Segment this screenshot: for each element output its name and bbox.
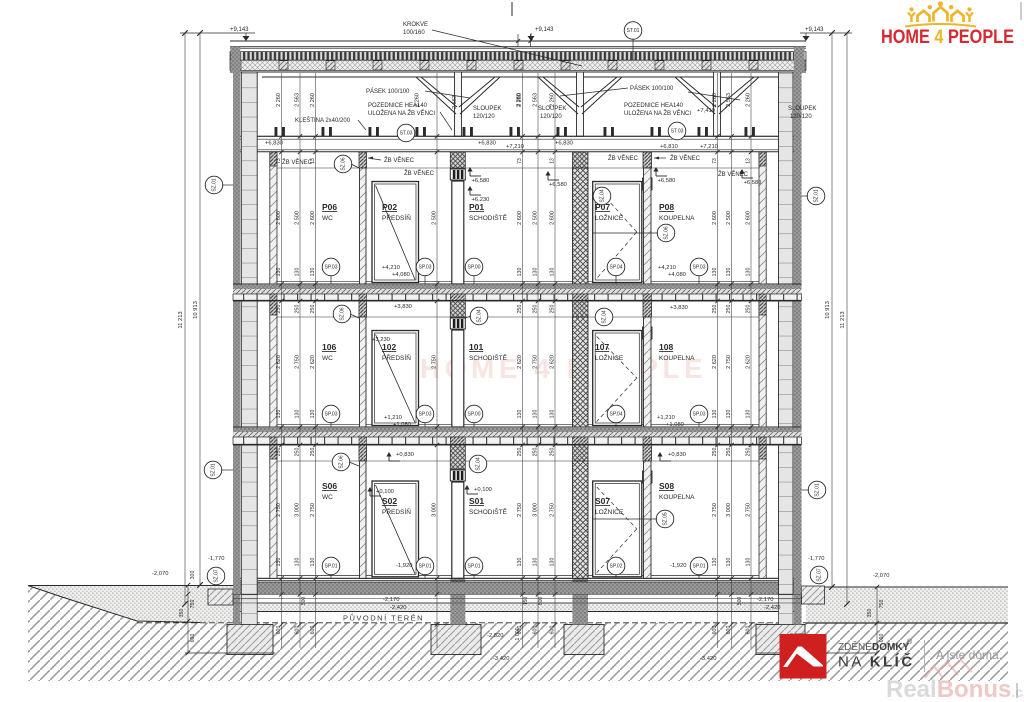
svg-text:10 913: 10 913: [825, 301, 831, 319]
svg-text:-3,420: -3,420: [493, 656, 509, 662]
svg-text:PŘEDSÍŇ: PŘEDSÍŇ: [382, 213, 411, 222]
svg-text:+0,830: +0,830: [396, 452, 414, 458]
svg-text:130: 130: [550, 410, 556, 419]
svg-text:ŽB VĚNEC: ŽB VĚNEC: [608, 154, 639, 162]
svg-text:ST.03: ST.03: [400, 131, 413, 137]
svg-text:POZEDNICE HEA140: POZEDNICE HEA140: [368, 103, 428, 109]
svg-text:250: 250: [295, 448, 301, 457]
svg-text:P06: P06: [322, 202, 337, 212]
svg-text:600: 600: [276, 626, 282, 635]
svg-text:PŮVODNÍ TERÉN: PŮVODNÍ TERÉN: [343, 614, 424, 623]
svg-text:250: 250: [550, 448, 556, 457]
svg-text:SZ.01: SZ.01: [815, 483, 821, 497]
svg-text:+0,100: +0,100: [376, 489, 394, 495]
svg-text:2 750: 2 750: [550, 503, 556, 517]
svg-text:2 260: 2 260: [746, 93, 752, 107]
svg-text:SZ.04: SZ.04: [477, 309, 483, 323]
svg-text:P08: P08: [659, 202, 674, 212]
svg-text:600: 600: [879, 634, 885, 643]
svg-text:S01: S01: [469, 496, 484, 506]
svg-text:RealBonus.cz: RealBonus.cz: [886, 676, 1024, 702]
svg-text:PŘEDSÍŇ: PŘEDSÍŇ: [382, 507, 411, 516]
svg-text:11 213: 11 213: [178, 311, 184, 328]
svg-text:-1,770: -1,770: [808, 556, 824, 562]
svg-text:250: 250: [310, 448, 316, 457]
svg-text:A jste doma.: A jste doma.: [936, 648, 1002, 662]
svg-text:+1,080: +1,080: [666, 422, 684, 428]
svg-text:+9,143: +9,143: [805, 27, 824, 33]
svg-text:2 500: 2 500: [726, 211, 732, 225]
svg-text:120/120: 120/120: [473, 114, 495, 120]
svg-text:600: 600: [726, 626, 732, 635]
svg-text:SZ.01: SZ.01: [212, 178, 218, 192]
svg-text:+6,580: +6,580: [744, 180, 762, 186]
svg-text:3 000: 3 000: [533, 503, 539, 517]
svg-text:2 563: 2 563: [452, 95, 458, 109]
svg-text:2 260: 2 260: [712, 93, 718, 107]
svg-text:SZ.07: SZ.07: [214, 569, 220, 583]
svg-text:2 260: 2 260: [516, 93, 522, 107]
svg-text:130: 130: [712, 410, 718, 419]
svg-text:SP.00: SP.00: [468, 265, 481, 271]
svg-text:-2,070: -2,070: [873, 573, 889, 579]
svg-text:130: 130: [276, 558, 282, 567]
svg-text:130: 130: [310, 558, 316, 567]
svg-text:2 500: 2 500: [533, 211, 539, 225]
svg-text:350: 350: [179, 609, 185, 618]
svg-text:KOUPELNA: KOUPELNA: [659, 215, 695, 222]
svg-text:2 260: 2 260: [550, 93, 556, 107]
svg-text:3 000: 3 000: [726, 503, 732, 517]
svg-text:+6,830: +6,830: [265, 141, 283, 147]
svg-text:-1,770: -1,770: [208, 556, 224, 562]
svg-text:ST.03: ST.03: [671, 129, 684, 135]
svg-text:250: 250: [550, 305, 556, 314]
svg-text:LOŽNICE: LOŽNICE: [595, 353, 624, 362]
svg-text:SP.03: SP.03: [419, 265, 432, 271]
svg-text:+7,210: +7,210: [506, 144, 524, 150]
svg-text:LOŽNICE: LOŽNICE: [595, 507, 624, 516]
svg-text:600: 600: [310, 626, 316, 635]
svg-text:+6,810: +6,810: [660, 144, 678, 150]
svg-text:-2,820: -2,820: [487, 633, 503, 639]
svg-text:600: 600: [190, 634, 196, 643]
svg-text:2 600: 2 600: [517, 211, 523, 225]
svg-text:SP.01: SP.01: [419, 564, 432, 570]
svg-text:+6,230: +6,230: [472, 197, 490, 203]
svg-text:11 213: 11 213: [840, 311, 846, 328]
svg-text:130: 130: [517, 558, 523, 567]
svg-text:-3,420: -3,420: [700, 656, 716, 662]
svg-text:NA KLÍČ: NA KLÍČ: [838, 653, 915, 671]
svg-text:130: 130: [276, 268, 282, 277]
svg-text:SZ.06: SZ.06: [340, 307, 346, 321]
svg-text:106: 106: [322, 342, 336, 352]
svg-text:SP.03: SP.03: [693, 265, 706, 271]
svg-text:2 600: 2 600: [276, 211, 282, 225]
svg-text:SZ.04: SZ.04: [476, 457, 482, 471]
svg-text:SZ.04: SZ.04: [602, 310, 608, 324]
svg-text:SP.03: SP.03: [325, 412, 338, 418]
svg-text:250: 250: [726, 305, 732, 314]
svg-text:101: 101: [469, 342, 483, 352]
svg-text:ŽB VĚNEC: ŽB VĚNEC: [718, 170, 749, 178]
svg-text:SP.03: SP.03: [419, 412, 432, 418]
svg-text:100/160: 100/160: [403, 30, 425, 36]
svg-text:+4,210: +4,210: [658, 265, 676, 271]
svg-text:130: 130: [295, 558, 301, 567]
svg-text:SP.01: SP.01: [693, 564, 706, 570]
svg-text:+3,230: +3,230: [372, 337, 390, 343]
svg-text:ŽB VĚNEC: ŽB VĚNEC: [384, 156, 415, 164]
svg-text:-2,170: -2,170: [383, 597, 399, 603]
svg-text:73: 73: [712, 158, 718, 164]
svg-text:+1,080: +1,080: [393, 422, 411, 428]
svg-text:SZ.05: SZ.05: [663, 512, 669, 526]
svg-text:2 260: 2 260: [310, 93, 316, 107]
svg-text:SP.04: SP.04: [610, 412, 623, 418]
svg-text:3 000: 3 000: [432, 503, 438, 517]
svg-text:SZ.06: SZ.06: [339, 455, 345, 469]
svg-text:-2,420: -2,420: [390, 605, 406, 611]
svg-text:2 620: 2 620: [550, 355, 556, 369]
svg-text:+7,210: +7,210: [700, 144, 718, 150]
svg-text:600: 600: [746, 626, 752, 635]
svg-text:600: 600: [550, 626, 556, 635]
svg-text:300: 300: [190, 571, 196, 580]
svg-text:130: 130: [533, 410, 539, 419]
svg-text:+6,580: +6,580: [658, 178, 676, 184]
svg-text:250: 250: [517, 305, 523, 314]
svg-text:130: 130: [517, 268, 523, 277]
svg-text:250: 250: [746, 305, 752, 314]
svg-text:500: 500: [737, 597, 743, 606]
svg-text:KOUPELNA: KOUPELNA: [659, 355, 695, 362]
svg-text:600: 600: [533, 626, 539, 635]
svg-text:SLOUPEK: SLOUPEK: [538, 106, 566, 112]
svg-text:DOMKY: DOMKY: [872, 642, 910, 653]
svg-text:PŘEDSÍŇ: PŘEDSÍŇ: [382, 353, 411, 362]
svg-text:SP.00: SP.00: [468, 412, 481, 418]
svg-text:130: 130: [726, 268, 732, 277]
svg-text:250: 250: [310, 305, 316, 314]
svg-text:SZ.01: SZ.01: [211, 463, 217, 477]
svg-text:ST.01: ST.01: [627, 28, 640, 34]
svg-text:WC: WC: [322, 215, 333, 222]
svg-text:ULOŽENA NA ŽB VĚNCI: ULOŽENA NA ŽB VĚNCI: [624, 109, 691, 117]
svg-text:+9,143: +9,143: [230, 27, 249, 33]
svg-text:2 620: 2 620: [310, 355, 316, 369]
svg-text:LOŽNICE: LOŽNICE: [595, 213, 624, 222]
svg-text:1 000: 1 000: [515, 627, 521, 640]
svg-text:-2,070: -2,070: [152, 571, 168, 577]
svg-text:®: ®: [907, 638, 913, 646]
svg-text:+3,830: +3,830: [394, 304, 412, 310]
svg-text:ŽB VĚNEC: ŽB VĚNEC: [404, 169, 435, 177]
svg-text:WC: WC: [322, 355, 333, 362]
svg-text:2 750: 2 750: [276, 503, 282, 517]
svg-text:SZ.07: SZ.07: [817, 568, 823, 582]
svg-text:2 260: 2 260: [276, 93, 282, 107]
svg-text:102: 102: [382, 342, 396, 352]
svg-text:2 563: 2 563: [533, 93, 539, 107]
svg-text:S07: S07: [595, 496, 610, 506]
svg-text:+6,580: +6,580: [549, 182, 567, 188]
svg-text:130: 130: [746, 410, 752, 419]
svg-text:SP.01: SP.01: [468, 564, 481, 570]
svg-text:2 563: 2 563: [726, 93, 732, 107]
svg-text:130: 130: [746, 268, 752, 277]
svg-text:P01: P01: [469, 202, 484, 212]
svg-text:2 750: 2 750: [517, 503, 523, 517]
svg-text:+1,210: +1,210: [384, 415, 402, 421]
svg-text:120/120: 120/120: [790, 114, 812, 120]
svg-text:130: 130: [517, 410, 523, 419]
svg-text:130: 130: [533, 268, 539, 277]
svg-text:PÁSEK 100/100: PÁSEK 100/100: [630, 85, 674, 92]
svg-text:ŽB VĚNEC: ŽB VĚNEC: [670, 154, 701, 162]
svg-text:KLEŠTINA 2x40/200: KLEŠTINA 2x40/200: [295, 117, 351, 124]
svg-text:250: 250: [726, 448, 732, 457]
svg-text:-1,920: -1,920: [670, 563, 686, 569]
svg-text:2 750: 2 750: [295, 355, 301, 369]
svg-text:130: 130: [712, 558, 718, 567]
svg-text:2 750: 2 750: [533, 355, 539, 369]
svg-text:2 500: 2 500: [295, 211, 301, 225]
svg-text:250: 250: [295, 305, 301, 314]
svg-text:WC: WC: [322, 494, 333, 501]
svg-text:600: 600: [295, 626, 301, 635]
svg-text:750: 750: [190, 600, 196, 609]
svg-text:+6,580: +6,580: [472, 178, 490, 184]
svg-text:250: 250: [712, 448, 718, 457]
svg-text:250: 250: [276, 305, 282, 314]
svg-text:PÁSEK 100/100: PÁSEK 100/100: [366, 88, 410, 95]
svg-text:SZ.06: SZ.06: [664, 226, 670, 240]
svg-text:SP.01: SP.01: [325, 564, 338, 570]
svg-text:-2,420: -2,420: [764, 605, 780, 611]
svg-text:HOME 4 PEOPLE: HOME 4 PEOPLE: [881, 27, 1014, 48]
svg-text:2 750: 2 750: [746, 503, 752, 517]
svg-text:SCHODIŠTĚ: SCHODIŠTĚ: [469, 353, 508, 362]
svg-text:130: 130: [533, 558, 539, 567]
svg-text:130: 130: [712, 268, 718, 277]
svg-text:SP.04: SP.04: [610, 265, 623, 271]
svg-text:SLOUPEK: SLOUPEK: [473, 106, 501, 112]
svg-text:250: 250: [517, 448, 523, 457]
svg-text:SCHODIŠTĚ: SCHODIŠTĚ: [469, 507, 508, 516]
svg-text:250: 250: [276, 448, 282, 457]
svg-text:10 913: 10 913: [193, 301, 199, 319]
svg-text:2 620: 2 620: [517, 355, 523, 369]
svg-text:SZ.06: SZ.06: [341, 157, 347, 171]
svg-text:500: 500: [301, 597, 307, 606]
svg-text:2 750: 2 750: [310, 503, 316, 517]
svg-text:250: 250: [533, 448, 539, 457]
svg-text:130: 130: [295, 410, 301, 419]
svg-text:130: 130: [295, 268, 301, 277]
svg-text:2 600: 2 600: [746, 211, 752, 225]
svg-text:500: 500: [538, 597, 544, 606]
svg-text:-2,170: -2,170: [757, 597, 773, 603]
svg-text:SP.02: SP.02: [610, 564, 623, 570]
svg-text:SCHODIŠTĚ: SCHODIŠTĚ: [469, 213, 508, 222]
svg-text:+0,100: +0,100: [474, 487, 492, 493]
svg-text:130: 130: [276, 410, 282, 419]
svg-text:73: 73: [517, 158, 523, 164]
svg-text:130: 130: [310, 410, 316, 419]
svg-text:+6,830: +6,830: [555, 141, 573, 147]
svg-text:130: 130: [550, 268, 556, 277]
svg-text:KOUPELNA: KOUPELNA: [659, 494, 695, 501]
svg-text:+0,830: +0,830: [668, 452, 686, 458]
svg-text:2 620: 2 620: [712, 355, 718, 369]
svg-text:ŽB VĚNEC: ŽB VĚNEC: [282, 158, 313, 166]
svg-text:+3,830: +3,830: [670, 305, 688, 311]
svg-text:-1,920: -1,920: [396, 563, 412, 569]
svg-text:+9,143: +9,143: [535, 27, 554, 33]
svg-text:130: 130: [550, 558, 556, 567]
svg-text:250: 250: [746, 448, 752, 457]
svg-text:13: 13: [746, 158, 752, 164]
svg-text:2 620: 2 620: [276, 355, 282, 369]
svg-text:KROKVE: KROKVE: [403, 22, 428, 28]
svg-text:2 750: 2 750: [726, 355, 732, 369]
svg-text:+6,830: +6,830: [478, 141, 496, 147]
svg-text:SP.03: SP.03: [325, 265, 338, 271]
svg-text:108: 108: [659, 342, 673, 352]
svg-text:2 600: 2 600: [310, 211, 316, 225]
svg-text:250: 250: [533, 305, 539, 314]
svg-text:2 600: 2 600: [550, 211, 556, 225]
svg-text:120/120: 120/120: [540, 114, 562, 120]
svg-text:+4,210: +4,210: [382, 265, 400, 271]
svg-text:350: 350: [867, 609, 873, 618]
svg-text:13: 13: [550, 158, 556, 164]
svg-text:2 750: 2 750: [712, 503, 718, 517]
svg-text:2 750: 2 750: [432, 355, 438, 369]
svg-text:SP.03: SP.03: [693, 412, 706, 418]
svg-text:S06: S06: [322, 481, 337, 491]
svg-text:+7,410: +7,410: [697, 108, 715, 114]
svg-text:750: 750: [879, 600, 885, 609]
svg-text:SZ.01: SZ.01: [814, 189, 820, 203]
svg-text:2 600: 2 600: [712, 211, 718, 225]
svg-text:107: 107: [595, 342, 609, 352]
svg-text:130: 130: [310, 268, 316, 277]
svg-text:S08: S08: [659, 481, 674, 491]
svg-text:130: 130: [746, 558, 752, 567]
svg-text:600: 600: [712, 626, 718, 635]
svg-text:2 620: 2 620: [746, 355, 752, 369]
svg-text:250: 250: [712, 305, 718, 314]
svg-text:150: 150: [523, 597, 529, 606]
svg-text:POZEDNICE HEA140: POZEDNICE HEA140: [624, 103, 684, 109]
svg-text:2 563: 2 563: [295, 93, 301, 107]
svg-text:SZ.04: SZ.04: [600, 189, 606, 203]
svg-text:ZDĚNÉ: ZDĚNÉ: [838, 640, 872, 653]
svg-text:ULOŽENA NA ŽB VĚNCI: ULOŽENA NA ŽB VĚNCI: [368, 109, 435, 117]
svg-text:+4,080: +4,080: [392, 272, 410, 278]
svg-text:P02: P02: [382, 202, 397, 212]
svg-text:3 000: 3 000: [295, 503, 301, 517]
svg-text:2 500: 2 500: [432, 211, 438, 225]
svg-text:S02: S02: [382, 496, 397, 506]
svg-text:+1,210: +1,210: [657, 415, 675, 421]
svg-text:+4,080: +4,080: [668, 272, 686, 278]
svg-text:SLOUPEK: SLOUPEK: [788, 106, 816, 112]
svg-text:130: 130: [726, 558, 732, 567]
svg-text:130: 130: [726, 410, 732, 419]
